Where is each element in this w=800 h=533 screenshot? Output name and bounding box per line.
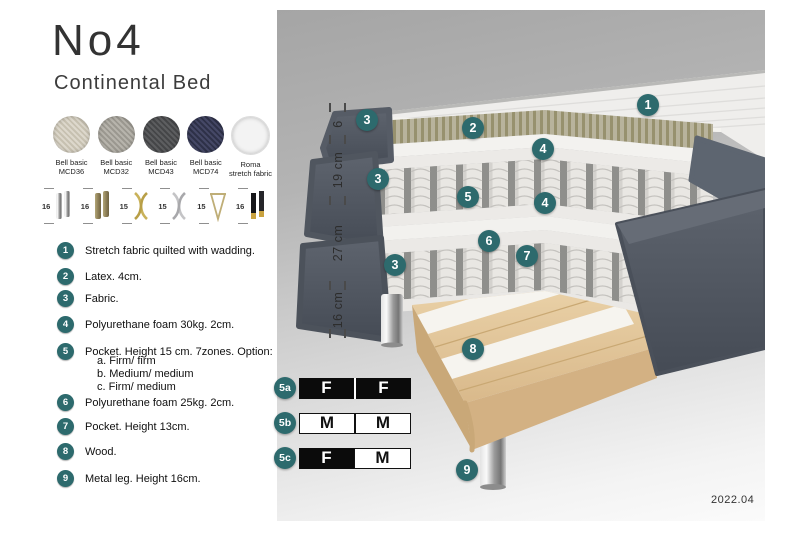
legend-number-badge: 2 [57,268,74,285]
leg-option: 15 [197,188,233,224]
callout-3-fabric-bottom: 3 [384,254,406,276]
side-fabric-corners [299,110,391,340]
fabric-name: Bell basic [55,158,87,167]
leg-option: 16 [236,188,272,224]
version-date: 2022.04 [711,494,754,506]
fabric-swatch: Romastretch fabric [229,116,272,178]
callout-4-foam-upper: 4 [532,138,554,160]
callout-1-stretch-fabric: 1 [637,94,659,116]
bed-cutaway-panel: 6 19 cm 27 cm 16 cm 1 3 2 4 3 5 4 6 7 3 … [277,10,765,521]
legend-text: Fabric. [85,293,119,305]
leg-height: 15 [158,202,169,211]
legend-item-6: 6 Polyurethane foam 25kg. 2cm. [57,394,234,411]
legend-text: Wood. [85,446,117,458]
firmness-bar: F F [299,378,411,399]
legend-item-2: 2 Latex. 4cm. [57,268,142,285]
fabric-swatch: Bell basicMCD32 [95,116,138,178]
dimension-label-leg: 16 cm [331,280,345,340]
product-title: No4 [52,16,145,66]
fabric-code: stretch fabric [229,169,272,178]
wood-cylinder-leg-icon [92,190,112,222]
firmness-badge: 5c [274,447,296,469]
firmness-cell: M [354,448,411,469]
firmness-cell: M [355,413,411,434]
fabric-name: Bell basic [145,158,177,167]
legend-item-9: 9 Metal leg. Height 16cm. [57,470,201,487]
firmness-bar: F M [299,448,411,469]
callout-5-pocket-upper: 5 [457,186,479,208]
left-metal-leg [381,294,403,348]
black-brass-leg-icon [247,190,267,222]
legend-item-7: 7 Pocket. Height 13cm. [57,418,190,435]
fabric-name: Roma [240,160,260,169]
fabric-code: MCD32 [104,167,129,176]
callout-6-foam-25kg: 6 [478,230,500,252]
leg-option: 16 [81,188,117,224]
legend-number-badge: 8 [57,443,74,460]
fabric-name: Bell basic [190,158,222,167]
leg-options: 16 16 15 [42,188,272,224]
firmness-cell: M [299,413,355,434]
callout-8-wood: 8 [462,338,484,360]
legend-number-badge: 1 [57,242,74,259]
fabric-swatches: Bell basicMCD36 Bell basicMCD32 Bell bas… [50,116,272,178]
leg-option: 15 [158,188,194,224]
legend-item-4: 4 Polyurethane foam 30kg. 2cm. [57,316,234,333]
fabric-swatch: Bell basicMCD36 [50,116,93,178]
legend-number-badge: 6 [57,394,74,411]
legend-text: Polyurethane foam 30kg. 2cm. [85,319,234,331]
legend-item-8: 8 Wood. [57,443,117,460]
leg-height: 16 [81,202,92,211]
legend-number-badge: 5 [57,343,74,360]
legend-option-b: b. Medium/ medium [97,368,194,380]
legend-text: Polyurethane foam 25kg. 2cm. [85,397,234,409]
firmness-cell: F [356,378,411,399]
dimension-label-base: 27 cm [331,213,345,273]
firmness-cell: F [299,448,354,469]
measure-dash [160,223,170,224]
leg-height: 15 [120,202,131,211]
leg-height: 15 [197,202,208,211]
legend-option-c: c. Firm/ medium [97,381,176,393]
hairpin-leg-icon [208,190,228,222]
firmness-badge: 5a [274,377,296,399]
fabric-swatch: Bell basicMCD74 [184,116,227,178]
legend-number-badge: 7 [57,418,74,435]
legend-number-badge: 9 [57,470,74,487]
callout-3-fabric-mid: 3 [367,168,389,190]
legend-number-badge: 3 [57,290,74,307]
firmness-bar: M M [299,413,411,434]
legend-text: Pocket. Height 13cm. [85,421,190,433]
legend-text: Latex. 4cm. [85,271,142,283]
firmness-cell: F [299,378,356,399]
chrome-cylinder-leg-icon [53,190,73,222]
firmness-badge: 5b [274,412,296,434]
fabric-swatch: Bell basicMCD43 [140,116,183,178]
measure-dash [199,223,209,224]
callout-4-foam-lower: 4 [534,192,556,214]
silver-cross-leg-icon [169,190,189,222]
measure-dash [238,223,248,224]
firmness-row-5c: 5c F M [274,447,411,469]
legend-item-5: 5 Pocket. Height 15 cm. 7zones. Option: [57,343,273,360]
product-subtitle: Continental Bed [54,72,211,95]
legend-item-1: 1 Stretch fabric quilted with wadding. [57,242,255,259]
fabric-swatch-image [53,116,90,153]
legend-text: Stretch fabric quilted with wadding. [85,245,255,257]
firmness-row-5a: 5a F F [274,377,411,399]
callout-7-pocket-lower: 7 [516,245,538,267]
fabric-name: Bell basic [100,158,132,167]
legend-item-3: 3 Fabric. [57,290,119,307]
legend-option-a: a. Firm/ firm [97,355,156,367]
fabric-code: MCD36 [59,167,84,176]
measure-dash [44,223,54,224]
measure-dash [83,223,93,224]
legend-text: Metal leg. Height 16cm. [85,473,201,485]
fabric-swatch-image [98,116,135,153]
infographic-page: No4 Continental Bed Bell basicMCD36 Bell… [0,0,800,533]
fabric-code: MCD74 [193,167,218,176]
leg-height: 16 [236,202,247,211]
measure-dash [122,223,132,224]
fabric-swatch-image [143,116,180,153]
legend-number-badge: 4 [57,316,74,333]
callout-3-fabric-top: 3 [356,109,378,131]
gold-cross-leg-icon [131,190,151,222]
fabric-swatch-image [187,116,224,153]
callout-2-latex: 2 [462,117,484,139]
dimension-label-top-mattress: 19 cm [331,140,345,200]
fabric-code: MCD43 [148,167,173,176]
callout-9-metal-leg: 9 [456,459,478,481]
fabric-swatch-image [231,116,270,155]
firmness-row-5b: 5b M M [274,412,411,434]
leg-option: 16 [42,188,78,224]
leg-option: 15 [120,188,156,224]
leg-height: 16 [42,202,53,211]
